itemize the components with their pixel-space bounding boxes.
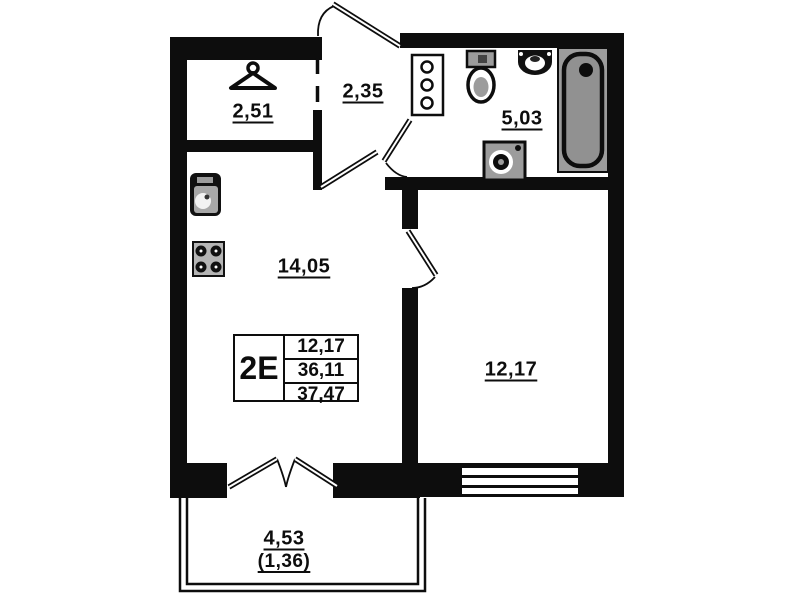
unit-info-table: 2E 12,17 36,11 37,47 — [233, 334, 359, 402]
unit-type-label: 2E — [235, 336, 285, 400]
balcony-reduced-area-label: (1,36) — [258, 551, 311, 573]
wall-top-right — [400, 33, 624, 48]
bathroom-area-label: 5,03 — [502, 108, 543, 131]
bedroom-area-label: 12,17 — [485, 359, 538, 382]
window — [462, 468, 578, 494]
unit-area-rows: 12,17 36,11 37,47 — [285, 336, 357, 400]
hanger-icon — [231, 63, 275, 88]
wall-right — [608, 33, 624, 497]
unit-total-area: 37,47 — [285, 382, 357, 406]
sink-icon — [518, 50, 552, 75]
floor-plan-page: 2,51 2,35 5,03 14,05 12,17 4,53 (1,36) 2… — [0, 0, 799, 600]
kitchen-door — [321, 152, 377, 187]
wall-kitchen-bedroom-bottom — [402, 288, 418, 463]
unit-apartment-area: 36,11 — [285, 358, 357, 382]
bathtub-icon — [558, 48, 608, 172]
bathroom-door — [384, 120, 410, 177]
wall-hallway-pier — [313, 110, 322, 190]
shelf-icon — [412, 55, 443, 115]
kitchen-sink-icon — [190, 173, 221, 216]
balcony-area-label: 4,53 — [264, 528, 305, 551]
stove-icon — [193, 242, 224, 276]
wall-top-left — [170, 37, 322, 60]
washing-machine-icon — [484, 142, 525, 180]
entrance-door — [318, 4, 400, 46]
kitchen-living-area-label: 14,05 — [278, 256, 331, 279]
wall-kitchen-bottom-right-cap — [333, 463, 420, 498]
toilet-icon — [467, 51, 495, 102]
balcony-french-doors — [229, 459, 337, 487]
bedroom-door — [408, 231, 436, 288]
wall-wardrobe-bottom — [170, 140, 315, 152]
wall-kitchen-bottom-left-cap — [170, 463, 227, 498]
unit-living-area: 12,17 — [285, 336, 357, 358]
wardrobe-area-label: 2,51 — [233, 101, 274, 124]
wall-left — [170, 37, 187, 498]
wall-kitchen-bedroom-top — [402, 177, 418, 229]
hallway-area-label: 2,35 — [343, 81, 384, 104]
floor-plan-drawing — [0, 0, 799, 600]
